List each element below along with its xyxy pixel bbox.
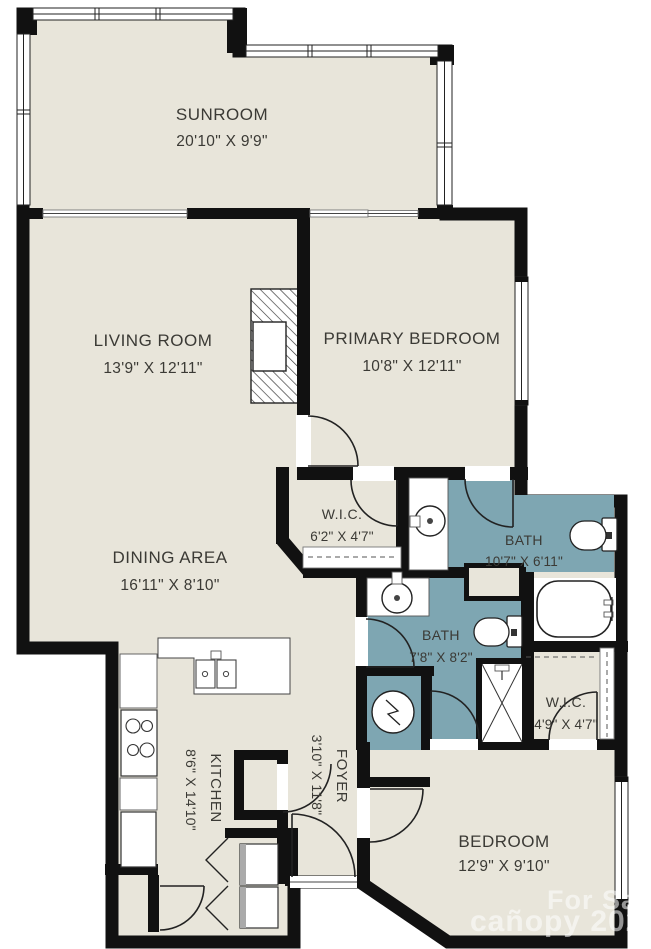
bedroom-wic-dims: 4'9" X 4'7"	[534, 717, 597, 732]
primary-wic-dims: 6'2" X 4'7"	[310, 529, 373, 544]
foyer-dims: 3'10" X 11'8"	[309, 735, 325, 816]
sunroom-top-right-window	[246, 45, 438, 57]
primary-bedroom-dims: 10'8" X 12'11"	[362, 358, 461, 375]
living-room-dims: 13'9" X 12'11"	[103, 360, 202, 377]
bathtub-icon	[537, 581, 613, 637]
stove-icon	[121, 710, 157, 776]
foyer-label: FOYER	[333, 749, 350, 803]
hall-bath-label: BATH	[422, 627, 460, 643]
fireplace	[251, 289, 302, 403]
dining-area-dims: 16'11" X 8'10"	[120, 577, 219, 594]
primary-wic-label: W.I.C.	[322, 506, 363, 522]
hall-bath-dims: 7'8" X 8'2"	[409, 650, 472, 665]
living-room-label: LIVING ROOM	[94, 331, 213, 350]
bedroom-label: BEDROOM	[458, 832, 549, 851]
shower	[476, 658, 528, 750]
primary-bath-label: BATH	[505, 532, 543, 548]
hall-bath-vanity	[367, 572, 429, 616]
water-heater-icon	[372, 691, 414, 733]
sunroom-dims: 20'10" X 9'9"	[176, 133, 268, 150]
fridge-icon	[121, 812, 156, 867]
hall-bath-toilet-icon	[474, 616, 522, 647]
bedroom-dims: 12'9" X 9'10"	[458, 858, 550, 875]
sunroom-top-window	[33, 8, 233, 20]
kitchen-label: KITCHEN	[207, 753, 224, 822]
bedroom-wic-label: W.I.C.	[546, 694, 587, 710]
kitchen-counter-left	[120, 654, 157, 708]
sunroom-left-window	[17, 34, 30, 205]
kitchen-counter-left2	[120, 778, 157, 810]
primary-bedroom-label: PRIMARY BEDROOM	[324, 329, 501, 348]
dining-area-label: DINING AREA	[112, 548, 227, 567]
primary-bath-vanity	[409, 478, 448, 570]
shower-head-icon	[495, 665, 509, 671]
kitchen-dims: 8'6" X 14'10"	[183, 749, 199, 831]
sunroom-right-window	[437, 61, 452, 205]
sunroom-label: SUNROOM	[176, 105, 268, 124]
primary-bath-dims: 10'7" X 6'11"	[485, 554, 563, 569]
watermark-line2: cañopy 2025	[470, 905, 651, 938]
floor-plan: SUNROOM 20'10" X 9'9" LIVING ROOM 13'9" …	[0, 0, 651, 949]
floor-plan-svg: SUNROOM 20'10" X 9'9" LIVING ROOM 13'9" …	[0, 0, 651, 949]
primary-bath-toilet-icon	[570, 518, 617, 551]
primary-bedroom-window	[515, 277, 528, 405]
